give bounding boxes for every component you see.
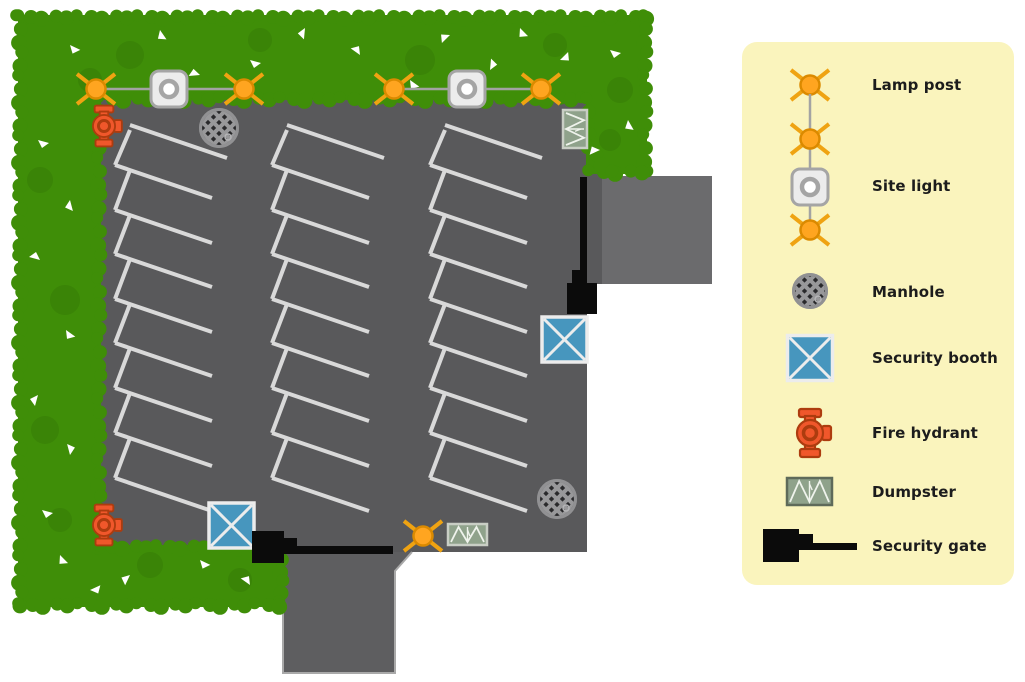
manhole-icon	[759, 273, 861, 309]
site-light-icon	[449, 71, 485, 107]
security-gate-icon	[763, 529, 857, 562]
legend-label-lamp-post: Lamp post	[872, 76, 961, 94]
legend-label-security-gate: Security gate	[872, 537, 987, 555]
legend-label-manhole: Manhole	[872, 283, 945, 301]
legend-label-security-booth: Security booth	[872, 349, 998, 367]
lamp-post-icon	[791, 124, 829, 154]
dumpster-icon	[448, 524, 487, 545]
fire-hydrant-icon	[797, 409, 831, 457]
site-light-icon	[792, 169, 828, 205]
legend-icons	[742, 42, 1014, 585]
legend-label-site-light: Site light	[872, 177, 950, 195]
legend-label-dumpster: Dumpster	[872, 483, 956, 501]
lamp-post-icon	[791, 215, 829, 245]
legend-panel: Lamp post Site light Manhole Security bo…	[742, 42, 1014, 585]
security-booth-icon	[788, 336, 833, 381]
security-booth-icon	[542, 317, 587, 362]
security-booth-icon	[209, 503, 254, 548]
site-plan	[0, 0, 740, 682]
dumpster-icon	[787, 478, 832, 505]
site-light-icon	[151, 71, 187, 107]
entrance-road-bottom	[283, 552, 412, 673]
entrance-road-right	[602, 176, 712, 284]
dumpster-icon	[563, 110, 587, 148]
parking-lot-diagram: Lamp post Site light Manhole Security bo…	[0, 0, 1025, 682]
legend-label-fire-hydrant: Fire hydrant	[872, 424, 978, 442]
